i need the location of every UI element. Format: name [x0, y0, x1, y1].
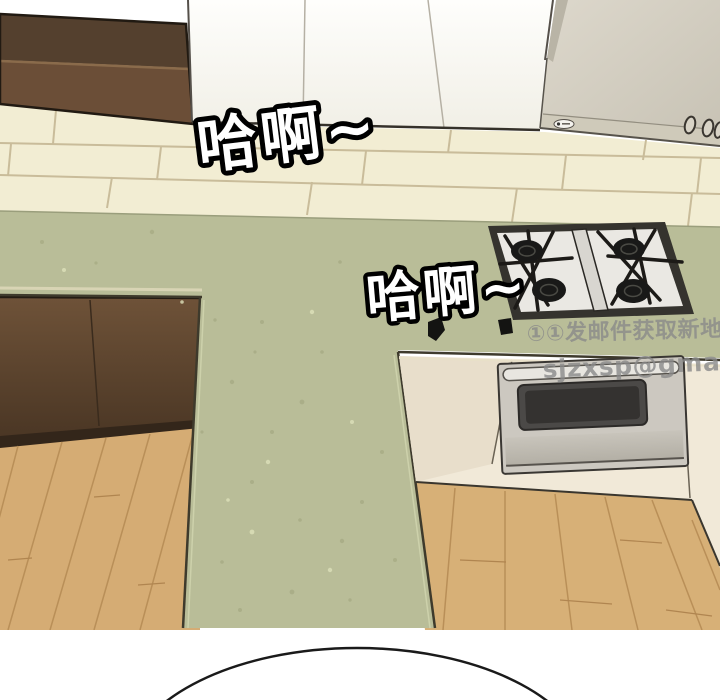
comic-panel: ①①发邮件获取新地址 sjzxsp@gmail.com 哈啊~ 哈啊~ — [0, 0, 720, 700]
wood-floor-right — [405, 480, 720, 630]
upper-cabinet-brown — [0, 14, 193, 124]
kitchen-scene: ①①发邮件获取新地址 sjzxsp@gmail.com 哈啊~ 哈啊~ — [0, 0, 720, 700]
range-hood — [540, 0, 720, 146]
wood-floor-left — [0, 428, 200, 630]
hood-logo-badge — [554, 120, 574, 129]
base-cabinet-brown — [0, 297, 207, 450]
